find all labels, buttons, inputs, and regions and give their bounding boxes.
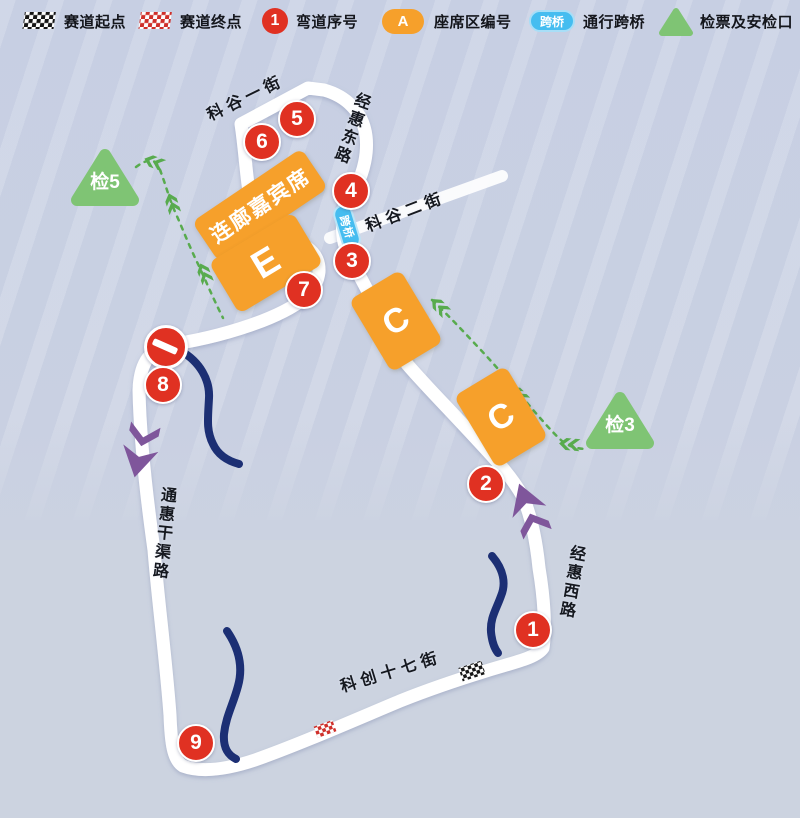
corner-badge-4: 4 bbox=[332, 172, 370, 210]
corner-badge-8: 8 bbox=[144, 366, 182, 404]
checkpoint-5-label: 检5 bbox=[69, 167, 141, 194]
legend-start-label: 赛道起点 bbox=[64, 11, 126, 32]
legend-corner: 1 弯道序号 bbox=[262, 6, 358, 36]
corner-badge-7: 7 bbox=[285, 271, 323, 309]
checkpoint-5: 检5 bbox=[69, 145, 141, 209]
river-near-corner-9 bbox=[224, 631, 240, 759]
river-near-corner-8 bbox=[181, 351, 239, 464]
checkpoint-triangle-icon bbox=[658, 5, 694, 37]
legend-bridge: 跨桥 通行跨桥 bbox=[529, 6, 645, 36]
start-checkered-icon bbox=[22, 11, 58, 31]
corner-badge-1: 1 bbox=[514, 611, 552, 649]
corner-badge-9: 9 bbox=[177, 724, 215, 762]
corner-number-icon: 1 bbox=[262, 8, 288, 34]
checkpoint-3: 检3 bbox=[584, 388, 656, 452]
stand-area-icon: A bbox=[382, 9, 424, 34]
race-track-map: 赛道起点 赛道终点 1 弯道序号 A 座席区编号 跨桥 通行跨桥 检票及安检口 … bbox=[0, 0, 800, 818]
legend-finish-label: 赛道终点 bbox=[180, 11, 242, 32]
finish-checkered-icon bbox=[138, 11, 174, 31]
no-entry-sign bbox=[144, 325, 188, 369]
legend-checkpoint-label: 检票及安检口 bbox=[700, 11, 793, 32]
legend-bridge-label: 通行跨桥 bbox=[583, 11, 645, 32]
bridge-icon: 跨桥 bbox=[529, 10, 575, 32]
corner-badge-5: 5 bbox=[278, 100, 316, 138]
legend-start: 赛道起点 bbox=[22, 6, 126, 36]
legend-checkpoint: 检票及安检口 bbox=[658, 6, 793, 36]
corner-badge-6: 6 bbox=[243, 123, 281, 161]
legend-stand: A 座席区编号 bbox=[382, 6, 512, 36]
legend-corner-label: 弯道序号 bbox=[296, 11, 358, 32]
no-entry-bar bbox=[152, 338, 179, 355]
river-near-corner-1 bbox=[491, 556, 504, 653]
corner-badge-2: 2 bbox=[467, 465, 505, 503]
checkpoint-3-label: 检3 bbox=[584, 410, 656, 437]
corner-badge-3: 3 bbox=[333, 242, 371, 280]
legend-stand-label: 座席区编号 bbox=[434, 11, 512, 32]
map-graphics bbox=[0, 0, 800, 818]
legend-finish: 赛道终点 bbox=[138, 6, 242, 36]
